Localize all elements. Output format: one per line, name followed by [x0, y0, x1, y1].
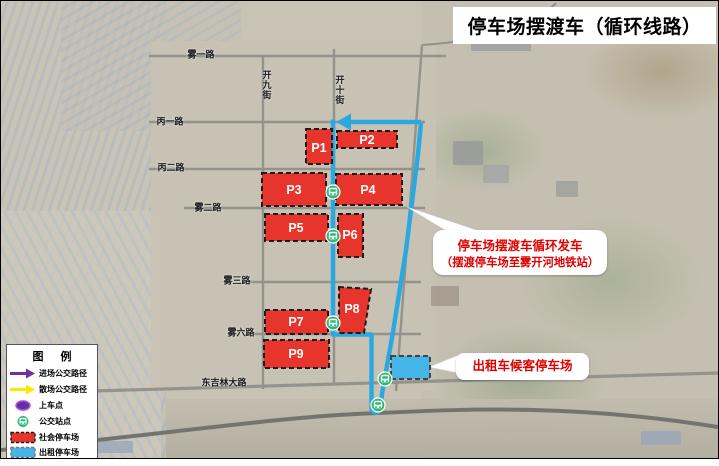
legend-item-public-parking: 社会停车场 — [7, 429, 97, 445]
route-direction-arrow-west — [336, 114, 351, 131]
bus-stop-icon — [8, 414, 38, 429]
legend-item-label: 上车点 — [39, 400, 63, 411]
public-parking-icon — [8, 431, 38, 444]
road-label-wusanlu: 雾三路 — [223, 274, 250, 287]
bus-stop-icon — [371, 398, 385, 412]
bus-stop-icon — [326, 185, 340, 199]
road-label-kaishijie: 开十街 — [334, 75, 347, 105]
parking-label-p5: P5 — [288, 221, 303, 235]
parking-label-p7: P7 — [288, 315, 303, 329]
map-poster-page: P1 P2 P3 P4 P5 P6 P7 P8 P9 雾一路 开九街 开十街 丙… — [0, 0, 719, 466]
parking-label-p2: P2 — [359, 133, 374, 147]
taxi-parking-note: 出租车候客停车场 — [456, 353, 589, 380]
parking-label-p9: P9 — [288, 347, 303, 361]
parking-label-p3: P3 — [286, 183, 301, 197]
legend-item-boarding-point: 上车点 — [7, 398, 97, 414]
parking-label-p6: P6 — [342, 228, 357, 242]
road-label-bingerlu: 丙二路 — [157, 161, 184, 174]
taxi-parking-icon — [8, 446, 38, 459]
shuttle-route-note: 停车场摆渡车循环发车 （摆渡停车场至雾开河地铁站） — [433, 230, 607, 275]
legend-item-label: 社会停车场 — [39, 432, 79, 443]
road-label-kaijiujie: 开九街 — [261, 70, 274, 100]
parking-label-p4: P4 — [360, 183, 375, 197]
purple-arrow-icon — [8, 367, 38, 380]
road-label-bingyilu: 丙一路 — [156, 115, 183, 128]
parking-label-p1: P1 — [311, 141, 326, 155]
road-label-wuyilu: 雾一路 — [187, 48, 214, 61]
shuttle-note-line1: 停车场摆渡车循环发车 — [457, 235, 582, 254]
legend-item-label: 出租停车场 — [39, 447, 79, 458]
bus-stop-icon — [378, 372, 392, 386]
page-title: 停车场摆渡车（循环线路） — [453, 7, 716, 44]
boarding-point-icon — [8, 399, 38, 412]
legend-item-label: 公交站点 — [39, 416, 71, 427]
legend-item-label: 进场公交路径 — [39, 368, 87, 379]
road-label-wuerlu: 雾二路 — [194, 201, 221, 214]
legend-item-bus-stop: 公交站点 — [7, 413, 97, 429]
road-label-dongjilin: 东吉林大路 — [201, 376, 246, 389]
taxi-callout-tail — [429, 355, 459, 373]
shuttle-note-line2: （摆渡停车场至雾开河地铁站） — [441, 254, 599, 270]
satellite-map: P1 P2 P3 P4 P5 P6 P7 P8 P9 雾一路 开九街 开十街 丙… — [0, 0, 719, 459]
bus-stop-icon — [326, 316, 340, 330]
taxi-parking-lot — [391, 356, 430, 379]
highway-south — [1, 410, 718, 450]
legend-title: 图 例 — [7, 348, 97, 364]
parking-label-p8: P8 — [344, 302, 359, 316]
bus-stop-icon — [326, 229, 340, 243]
legend-box: 图 例 进场公交路径 散场公交路径 上车点 公交站点 社会停车场 — [6, 344, 98, 459]
legend-item-exit-route: 散场公交路径 — [7, 382, 97, 398]
legend-item-entry-route: 进场公交路径 — [7, 366, 97, 382]
yellow-arrow-icon — [8, 383, 38, 396]
legend-item-label: 散场公交路径 — [39, 384, 87, 395]
map-overlay-graphics: P1 P2 P3 P4 P5 P6 P7 P8 P9 — [1, 1, 718, 458]
road-label-wuliulu: 雾六路 — [227, 326, 254, 339]
legend-item-taxi-parking: 出租停车场 — [7, 445, 97, 459]
